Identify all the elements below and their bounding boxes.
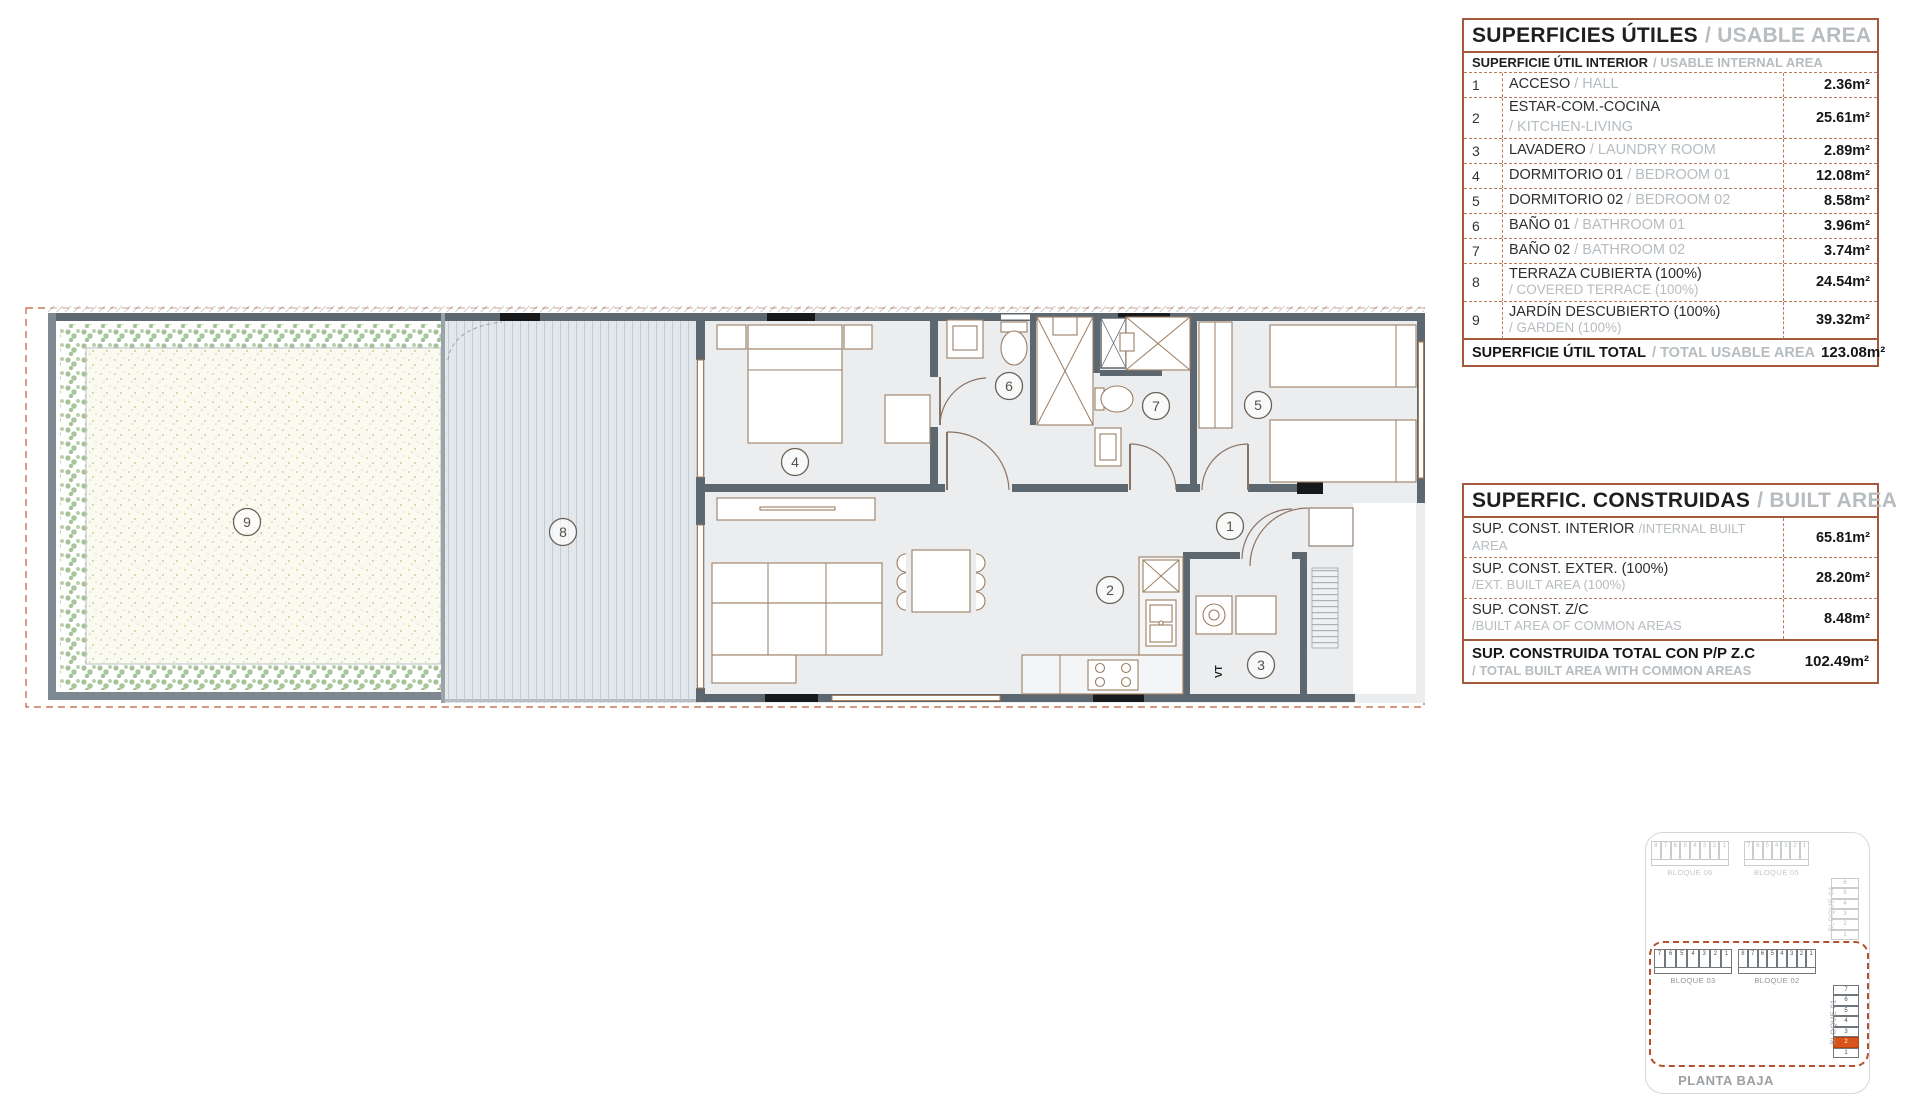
unit-cell: 8 <box>1651 841 1661 860</box>
svg-text:1: 1 <box>1226 518 1234 534</box>
title-es: SUPERFICIES ÚTILES <box>1472 24 1698 48</box>
block-02-units: 87654321 <box>1738 949 1816 968</box>
table-row: 2 ESTAR-COM.-COCINA / KITCHEN-LIVING 25.… <box>1464 98 1877 139</box>
room-label-2: 2 <box>1097 577 1124 604</box>
total-en: / TOTAL BUILT AREA WITH COMMON AREAS <box>1472 663 1801 679</box>
svg-text:5: 5 <box>1254 397 1262 413</box>
unit-cell: 6 <box>1671 841 1681 860</box>
row-label: BAÑO 01 / BATHROOM 01 <box>1503 214 1783 238</box>
vt-label: VT <box>1214 665 1225 678</box>
unit-cell: 6 <box>1753 841 1762 860</box>
unit-cell: 6 <box>1665 949 1676 968</box>
title-en: / USABLE AREA <box>1705 24 1871 48</box>
floor-caption: PLANTA BAJA <box>1646 1073 1806 1088</box>
row-value: 65.81m² <box>1783 518 1877 557</box>
svg-text:8: 8 <box>559 524 567 540</box>
block-02: 87654321 BLOQUE 02 <box>1738 949 1816 985</box>
room-label-7: 7 <box>1143 393 1170 420</box>
block-05-label: BLOQUE 05 <box>1744 868 1809 877</box>
svg-text:6: 6 <box>1005 378 1013 394</box>
table-row: 4 DORMITORIO 01 / BEDROOM 01 12.08m² <box>1464 164 1877 189</box>
garden-gravel <box>86 348 441 664</box>
block-01: 7654321 BLOQUE 01 <box>1833 985 1859 1058</box>
total-en: / TOTAL USABLE AREA <box>1652 345 1815 361</box>
site-locator-map: 87654321 BLOQUE 06 7654321 BLOQUE 05 654… <box>1645 832 1870 1094</box>
unit-cell: 4 <box>1690 841 1700 860</box>
usable-table-subtitle: SUPERFICIE ÚTIL INTERIOR / USABLE INTERN… <box>1464 53 1877 73</box>
row-label: SUP. CONST. Z/C /BUILT AREA OF COMMON AR… <box>1464 599 1783 639</box>
unit-cell: 7 <box>1661 841 1671 860</box>
unit-cell: 1 <box>1719 841 1729 860</box>
title-en: / BUILT AREA <box>1757 489 1897 513</box>
room-label-9: 9 <box>234 509 261 536</box>
row-label: LAVADERO / LAUNDRY ROOM <box>1503 139 1783 163</box>
block-05: 7654321 BLOQUE 05 <box>1744 841 1809 877</box>
entrance-lintel <box>1297 482 1323 494</box>
block-01-label: BLOQUE 01 <box>1829 992 1838 1052</box>
block-06-label: BLOQUE 06 <box>1651 868 1729 877</box>
unit-cell: 7 <box>1748 949 1758 968</box>
row-num: 7 <box>1464 239 1503 263</box>
block-06-units: 87654321 <box>1651 841 1729 860</box>
row-value: 2.89m² <box>1783 139 1877 163</box>
unit-cell: 3 <box>1781 841 1790 860</box>
room-label-4: 4 <box>782 449 809 476</box>
unit-cell: 7 <box>1654 949 1665 968</box>
subtitle-en: / USABLE INTERNAL AREA <box>1653 55 1823 70</box>
svg-text:4: 4 <box>791 454 799 470</box>
svg-text:7: 7 <box>1152 398 1160 414</box>
usable-total-row: SUPERFICIE ÚTIL TOTAL / TOTAL USABLE ARE… <box>1464 338 1877 365</box>
unit-cell: 1 <box>1721 949 1732 968</box>
block-03-units: 7654321 <box>1654 949 1732 968</box>
window-bedroom2 <box>1419 342 1424 478</box>
window-living <box>832 696 1000 701</box>
table-row: 3 LAVADERO / LAUNDRY ROOM 2.89m² <box>1464 139 1877 164</box>
block-04: 654321 BLOQUE 04 <box>1831 878 1859 940</box>
row-num: 4 <box>1464 164 1503 188</box>
block-04-label: BLOQUE 04 <box>1827 879 1836 939</box>
row-value: 8.48m² <box>1783 599 1877 639</box>
row-num: 9 <box>1464 302 1503 339</box>
insulation-hatch <box>48 306 1424 312</box>
garden-area <box>48 313 445 700</box>
row-num: 3 <box>1464 139 1503 163</box>
unit-cell: 6 <box>1758 949 1768 968</box>
unit-cell: 4 <box>1777 949 1787 968</box>
unit-cell: 2 <box>1710 841 1720 860</box>
room-label-5: 5 <box>1245 392 1272 419</box>
row-label: BAÑO 02 / BATHROOM 02 <box>1503 239 1783 263</box>
block-06: 87654321 BLOQUE 06 <box>1651 841 1729 877</box>
unit-cell: 8 <box>1738 949 1748 968</box>
unit-cell: 4 <box>1772 841 1781 860</box>
hedge-bottom <box>60 664 441 690</box>
unit-cell: 2 <box>1790 841 1799 860</box>
room-label-8: 8 <box>550 519 577 546</box>
unit-cell: 3 <box>1700 841 1710 860</box>
floor-plan: VT 1 2 3 4 5 6 7 8 9 <box>0 300 1430 712</box>
row-label: ESTAR-COM.-COCINA / KITCHEN-LIVING <box>1503 98 1783 138</box>
row-label: DORMITORIO 01 / BEDROOM 01 <box>1503 164 1783 188</box>
row-label: TERRAZA CUBIERTA (100%) / COVERED TERRAC… <box>1503 264 1783 301</box>
row-label: SUP. CONST. INTERIOR /INTERNAL BUILT ARE… <box>1464 518 1783 557</box>
table-row: SUP. CONST. Z/C /BUILT AREA OF COMMON AR… <box>1464 599 1877 640</box>
svg-text:2: 2 <box>1106 582 1114 598</box>
interior-area: VT <box>696 313 1425 703</box>
row-value: 25.61m² <box>1783 98 1877 138</box>
usable-area-table: SUPERFICIES ÚTILES / USABLE AREA SUPERFI… <box>1462 18 1879 367</box>
unit-cell: 3 <box>1787 949 1797 968</box>
row-num: 1 <box>1464 73 1503 97</box>
total-value: 102.49m² <box>1801 653 1869 670</box>
table-row: 5 DORMITORIO 02 / BEDROOM 02 8.58m² <box>1464 189 1877 214</box>
hedge-top <box>60 324 441 348</box>
table-row: SUP. CONST. INTERIOR /INTERNAL BUILT ARE… <box>1464 518 1877 558</box>
total-es: SUP. CONSTRUIDA TOTAL CON P/P Z.C <box>1472 645 1801 663</box>
unit-cell: 3 <box>1699 949 1710 968</box>
unit-cell: 4 <box>1687 949 1698 968</box>
block-03: 7654321 BLOQUE 03 <box>1654 949 1732 985</box>
total-value: 123.08m² <box>1821 344 1885 361</box>
row-label: ACCESO / HALL <box>1503 73 1783 97</box>
room-label-6: 6 <box>996 373 1023 400</box>
unit-cell: 7 <box>1744 841 1753 860</box>
sliding-door-terrace <box>698 525 704 688</box>
block-02-label: BLOQUE 02 <box>1738 976 1816 985</box>
entry-steps <box>1312 568 1338 648</box>
unit-cell: 2 <box>1710 949 1721 968</box>
svg-text:9: 9 <box>243 514 251 530</box>
entry-porch <box>1353 503 1416 694</box>
row-value: 39.32m² <box>1783 302 1877 339</box>
closet-bedroom1 <box>885 395 930 443</box>
usable-table-title: SUPERFICIES ÚTILES / USABLE AREA <box>1464 20 1877 53</box>
row-value: 28.20m² <box>1783 558 1877 598</box>
unit-cell: 5 <box>1676 949 1687 968</box>
title-es: SUPERFIC. CONSTRUIDAS <box>1472 489 1750 513</box>
total-es: SUPERFICIE ÚTIL TOTAL <box>1472 345 1646 361</box>
row-value: 2.36m² <box>1783 73 1877 97</box>
built-total-row: SUP. CONSTRUIDA TOTAL CON P/P Z.C / TOTA… <box>1464 639 1877 683</box>
row-num: 2 <box>1464 98 1503 138</box>
built-table-title: SUPERFIC. CONSTRUIDAS / BUILT AREA <box>1464 485 1877 518</box>
row-label: JARDÍN DESCUBIERTO (100%) / GARDEN (100%… <box>1503 302 1783 339</box>
room-label-3: 3 <box>1248 652 1275 679</box>
row-label: SUP. CONST. EXTER. (100%) /EXT. BUILT AR… <box>1464 558 1783 598</box>
table-row: 9 JARDÍN DESCUBIERTO (100%) / GARDEN (10… <box>1464 302 1877 340</box>
row-value: 3.74m² <box>1783 239 1877 263</box>
row-label: DORMITORIO 02 / BEDROOM 02 <box>1503 189 1783 213</box>
unit-cell: 5 <box>1680 841 1690 860</box>
block-05-units: 7654321 <box>1744 841 1809 860</box>
table-row: 1 ACCESO / HALL 2.36m² <box>1464 73 1877 98</box>
unit-cell: 2 <box>1797 949 1807 968</box>
table-row: 8 TERRAZA CUBIERTA (100%) / COVERED TERR… <box>1464 264 1877 302</box>
block-03-label: BLOQUE 03 <box>1654 976 1732 985</box>
row-value: 24.54m² <box>1783 264 1877 301</box>
table-row: 7 BAÑO 02 / BATHROOM 02 3.74m² <box>1464 239 1877 264</box>
row-value: 3.96m² <box>1783 214 1877 238</box>
unit-cell: 5 <box>1767 949 1777 968</box>
table-row: 6 BAÑO 01 / BATHROOM 01 3.96m² <box>1464 214 1877 239</box>
built-area-table: SUPERFIC. CONSTRUIDAS / BUILT AREA SUP. … <box>1462 483 1879 684</box>
room-label-1: 1 <box>1217 513 1244 540</box>
hedge-left <box>60 324 86 687</box>
row-num: 6 <box>1464 214 1503 238</box>
row-num: 5 <box>1464 189 1503 213</box>
row-value: 8.58m² <box>1783 189 1877 213</box>
svg-text:3: 3 <box>1257 657 1265 673</box>
terrace-area <box>441 313 705 703</box>
unit-cell: 1 <box>1800 841 1809 860</box>
row-num: 8 <box>1464 264 1503 301</box>
window-bedroom1 <box>698 360 704 477</box>
unit-cell: 1 <box>1806 949 1816 968</box>
subtitle-es: SUPERFICIE ÚTIL INTERIOR <box>1472 55 1648 70</box>
row-value: 12.08m² <box>1783 164 1877 188</box>
unit-cell: 5 <box>1763 841 1772 860</box>
table-row: SUP. CONST. EXTER. (100%) /EXT. BUILT AR… <box>1464 558 1877 599</box>
